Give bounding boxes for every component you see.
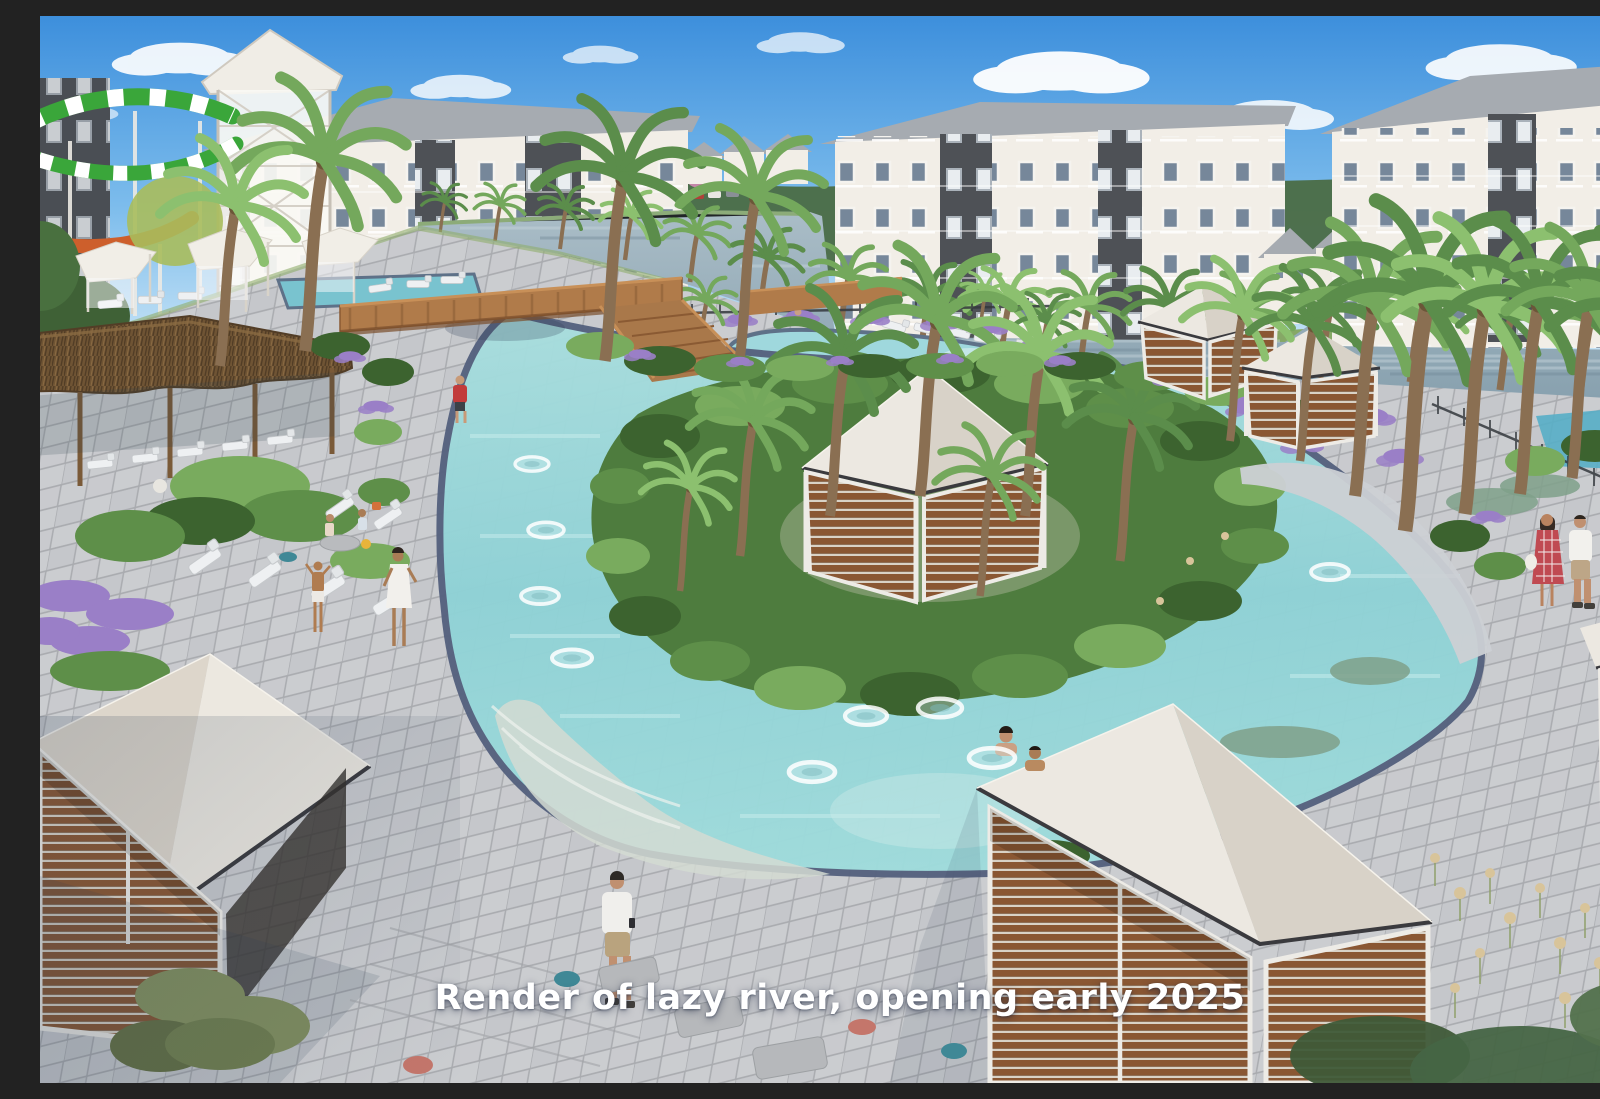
corner-shade — [40, 716, 460, 1083]
lazy-river-render: Render of lazy river, opening early 2025 — [40, 16, 1600, 1083]
teal-table — [279, 552, 297, 562]
side-table — [153, 479, 167, 493]
coral-stool — [848, 1019, 876, 1035]
teal-stool — [941, 1043, 967, 1059]
render-caption: Render of lazy river, opening early 2025 — [40, 978, 1600, 1018]
